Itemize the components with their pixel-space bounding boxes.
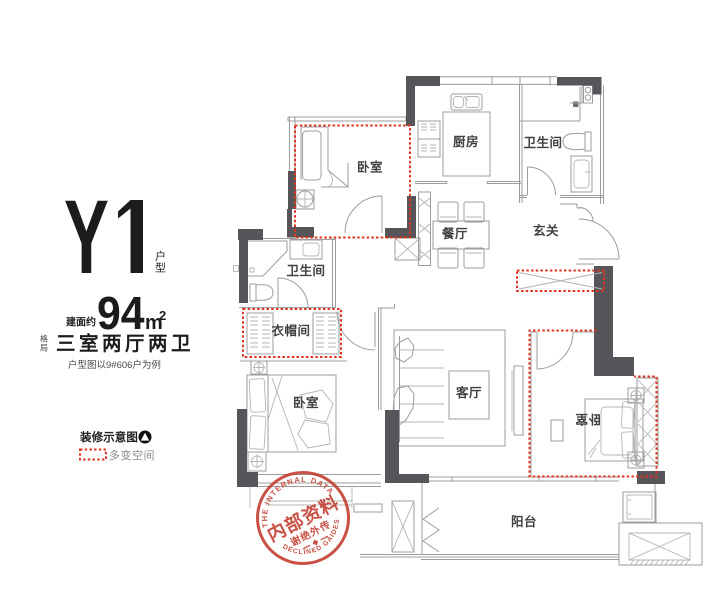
svg-text:卫生间: 卫生间 xyxy=(523,135,562,150)
svg-text:户型图以9#606户为例: 户型图以9#606户为例 xyxy=(68,359,161,371)
svg-text:94: 94 xyxy=(97,289,145,340)
svg-text:衣帽间: 衣帽间 xyxy=(271,323,310,338)
svg-text:卧室: 卧室 xyxy=(575,412,601,427)
svg-text:玄关: 玄关 xyxy=(533,223,559,238)
svg-text:厨房: 厨房 xyxy=(453,134,479,149)
svg-text:卧室: 卧室 xyxy=(293,395,319,410)
svg-text:局: 局 xyxy=(40,344,48,353)
svg-text:Y: Y xyxy=(64,178,109,296)
svg-text:卧室: 卧室 xyxy=(357,160,383,175)
svg-text:装修示意图: 装修示意图 xyxy=(79,430,138,444)
svg-text:2: 2 xyxy=(159,308,166,323)
svg-text:客厅: 客厅 xyxy=(455,385,482,400)
svg-text:建面约: 建面约 xyxy=(65,316,96,329)
svg-text:卫生间: 卫生间 xyxy=(286,263,325,278)
svg-text:餐厅: 餐厅 xyxy=(441,226,468,241)
svg-text:户: 户 xyxy=(155,249,166,263)
svg-text:三室两厅两卫: 三室两厅两卫 xyxy=(56,332,194,355)
svg-text:阳台: 阳台 xyxy=(511,514,537,529)
svg-text:格: 格 xyxy=(40,334,48,344)
svg-text:型: 型 xyxy=(155,261,166,275)
svg-text:多变空间: 多变空间 xyxy=(109,448,155,462)
